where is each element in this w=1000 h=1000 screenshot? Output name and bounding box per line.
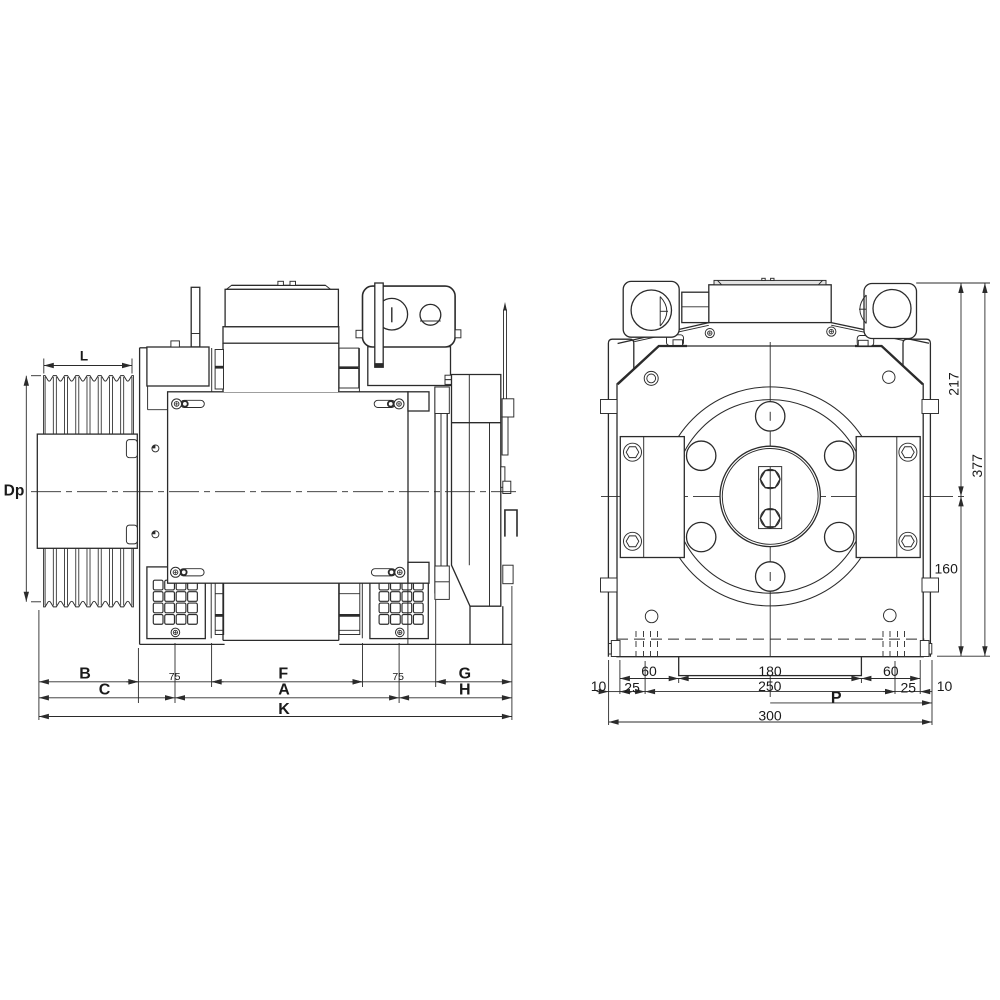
svg-text:P: P — [831, 690, 842, 707]
svg-text:75: 75 — [392, 671, 404, 683]
svg-text:K: K — [278, 701, 290, 718]
svg-text:B: B — [79, 665, 91, 682]
svg-text:180: 180 — [758, 663, 782, 679]
svg-text:60: 60 — [883, 663, 899, 679]
svg-text:F: F — [278, 665, 288, 682]
svg-text:G: G — [459, 665, 471, 682]
svg-text:10: 10 — [937, 678, 953, 694]
svg-text:25: 25 — [901, 680, 917, 696]
svg-text:217: 217 — [946, 372, 962, 396]
svg-text:L: L — [80, 349, 88, 364]
svg-text:A: A — [278, 681, 290, 698]
svg-text:377: 377 — [969, 454, 985, 478]
svg-text:60: 60 — [641, 663, 657, 679]
svg-text:Dp: Dp — [4, 483, 25, 500]
svg-text:300: 300 — [758, 708, 782, 724]
svg-text:25: 25 — [624, 680, 640, 696]
svg-text:H: H — [459, 681, 471, 698]
svg-text:250: 250 — [758, 678, 782, 694]
svg-text:75: 75 — [169, 671, 181, 683]
svg-text:160: 160 — [935, 561, 959, 577]
svg-text:C: C — [99, 681, 111, 698]
svg-text:10: 10 — [591, 678, 607, 694]
